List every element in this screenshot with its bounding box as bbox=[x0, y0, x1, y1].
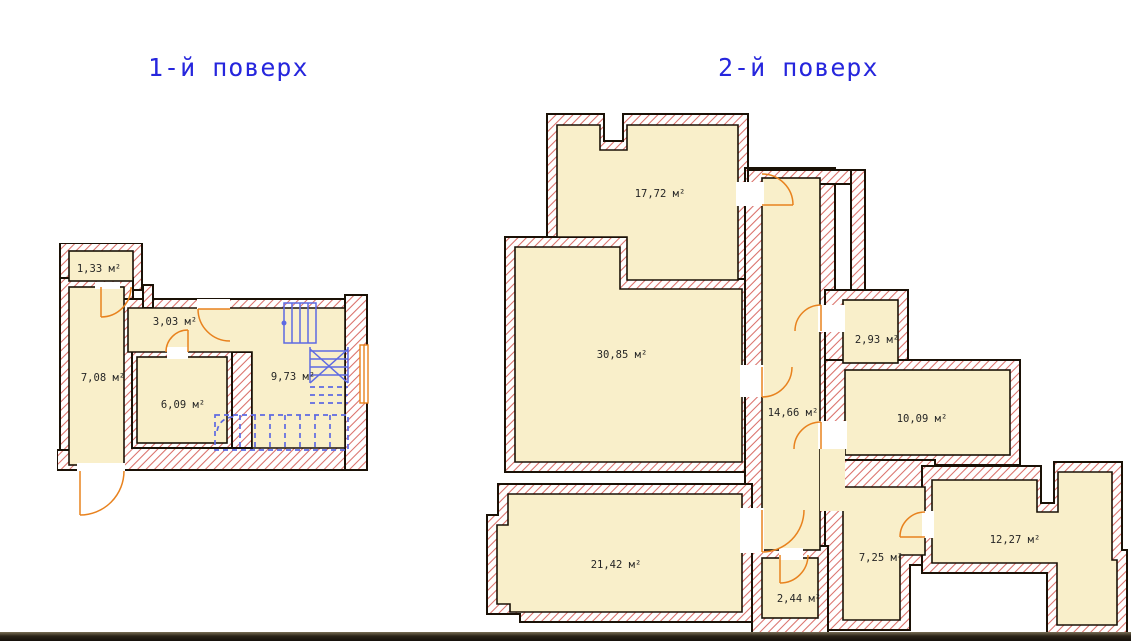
floor2-room-9-shape bbox=[932, 472, 1117, 625]
entrance-opening bbox=[77, 463, 125, 471]
door-opening bbox=[740, 365, 764, 397]
passage-area bbox=[820, 449, 845, 511]
room-area-label: 1,33 м² bbox=[77, 263, 121, 275]
room-area-label: 12,27 м² bbox=[990, 534, 1041, 546]
room-area-label: 2,44 м² bbox=[777, 593, 821, 605]
entrance-door-swing-arc bbox=[80, 471, 124, 515]
door-opening bbox=[818, 305, 845, 332]
floor1-title: 1-й поверх bbox=[148, 53, 293, 82]
door-opening bbox=[922, 511, 934, 538]
door-opening bbox=[197, 299, 230, 309]
floor2-plan: 17,72 м² 30,85 м² 14,66 м² 2,93 м² 10,09… bbox=[485, 108, 1131, 641]
room-area-label: 3,03 м² bbox=[153, 316, 197, 328]
floor2-title: 2-й поверх bbox=[718, 53, 868, 82]
wall-block bbox=[851, 170, 865, 292]
stair-start-dot bbox=[282, 321, 287, 326]
room-area-label: 7,25 м² bbox=[859, 552, 903, 564]
door-opening bbox=[95, 282, 120, 289]
room-area-label: 2,93 м² bbox=[855, 334, 899, 346]
floor2-room-7-shape bbox=[762, 558, 818, 618]
door-opening bbox=[779, 548, 803, 560]
room-area-label: 17,72 м² bbox=[635, 188, 686, 200]
door-opening bbox=[818, 421, 847, 449]
room-area-label: 6,09 м² bbox=[161, 399, 205, 411]
room-area-label: 21,42 м² bbox=[591, 559, 642, 571]
door-opening bbox=[167, 347, 188, 359]
floor2-room-4-shape bbox=[843, 300, 898, 363]
floor2-room-6-shape bbox=[497, 494, 742, 612]
floor2-rooms bbox=[497, 125, 1117, 625]
floor1-plan: 1,33 м² 3,03 м² 7,08 м² 6,09 м² 9,73 м² bbox=[57, 243, 377, 533]
room-area-label: 7,08 м² bbox=[81, 372, 125, 384]
floorplan-page: 1-й поверх 2-й поверх bbox=[0, 0, 1131, 641]
door-opening bbox=[736, 182, 764, 206]
scan-edge-strip bbox=[0, 632, 1131, 641]
room-area-label: 14,66 м² bbox=[768, 407, 819, 419]
door-opening bbox=[740, 508, 764, 553]
room-area-label: 10,09 м² bbox=[897, 413, 948, 425]
room-area-label: 9,73 м² bbox=[271, 371, 315, 383]
wall-column bbox=[232, 352, 252, 448]
room-area-label: 30,85 м² bbox=[597, 349, 648, 361]
wall-pilaster bbox=[143, 285, 153, 308]
floor2-room-3-shape bbox=[762, 178, 820, 550]
